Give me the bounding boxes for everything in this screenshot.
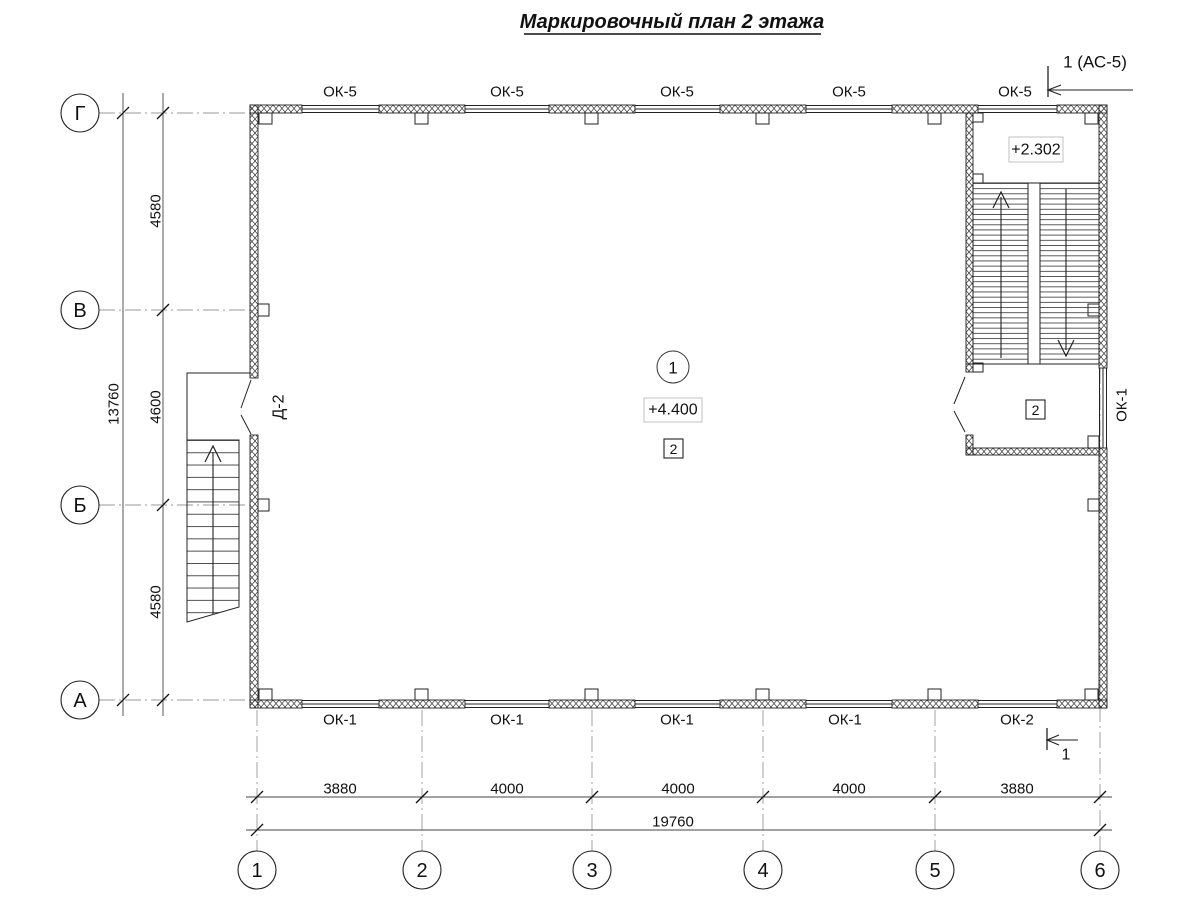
axis-col-5: 5 (929, 860, 940, 882)
axis-col-4: 4 (757, 860, 768, 882)
dimension-ticks (117, 107, 1106, 836)
drawing-title: Маркировочный план 2 этажа (520, 11, 825, 33)
window-label-top-5: ОК-5 (998, 84, 1032, 101)
window-label-right: ОК-1 (1114, 388, 1131, 422)
axis-grid-lines (99, 113, 1100, 851)
dim-h-segment-5: 3880 (1000, 781, 1033, 798)
window-label-top-2: ОК-5 (490, 84, 524, 101)
window-label-bottom-4: ОК-1 (828, 712, 862, 729)
axis-bubbles-rows: Г В Б А (61, 94, 99, 719)
elevation-landing: +2.302 (1011, 142, 1060, 159)
door-label-d2: Д-2 (271, 394, 288, 419)
axis-row-v: В (73, 300, 86, 322)
dimension-lines (123, 93, 1112, 830)
window-label-top-3: ОК-5 (660, 84, 694, 101)
dim-h-segment-3: 4000 (661, 781, 694, 798)
stair-left-exterior (187, 373, 250, 622)
section-label-top: 1 (АС-5) (1063, 53, 1127, 72)
window-right (1100, 368, 1107, 448)
section-label-bottom: 1 (1062, 747, 1071, 764)
floor-plan-drawing: Маркировочный план 2 этажа (0, 0, 1200, 900)
dim-v-segment-3: 4580 (148, 585, 165, 618)
room-type-stair: 2 (1032, 402, 1040, 418)
axis-bubbles-cols: 1 2 3 4 5 6 (238, 851, 1119, 889)
section-mark-top: 1 (АС-5) (1048, 53, 1133, 98)
stair-flight-down (1040, 183, 1099, 364)
dim-v-segment-1: 4580 (148, 194, 165, 227)
dim-v-total: 13760 (106, 383, 123, 425)
window-label-top-1: ОК-5 (323, 84, 357, 101)
door-leaf-d2 (241, 380, 251, 434)
door-leaf-stair-room (954, 377, 965, 432)
axis-row-g: Г (75, 103, 86, 125)
section-mark-bottom: 1 (1047, 728, 1078, 764)
window-label-bottom-5: ОК-2 (1000, 712, 1034, 729)
elevation-main: +4.400 (648, 402, 697, 419)
window-label-top-4: ОК-5 (832, 84, 866, 101)
dim-h-segment-4: 4000 (832, 781, 865, 798)
dim-h-segment-2: 4000 (490, 781, 523, 798)
axis-col-1: 1 (251, 860, 262, 882)
room-number: 1 (668, 359, 677, 378)
axis-col-3: 3 (586, 860, 597, 882)
room-type-hall: 2 (670, 441, 678, 457)
axis-row-a: А (73, 690, 87, 712)
floor-plan-page: Маркировочный план 2 этажа (0, 0, 1200, 900)
window-label-bottom-3: ОК-1 (660, 712, 694, 729)
dim-h-segment-1: 3880 (323, 781, 356, 798)
dim-h-total: 19760 (652, 814, 694, 831)
dim-v-segment-2: 4600 (148, 390, 165, 423)
window-label-bottom-1: ОК-1 (323, 712, 357, 729)
axis-col-6: 6 (1094, 860, 1105, 882)
window-label-bottom-2: ОК-1 (490, 712, 524, 729)
axis-row-b: Б (73, 495, 86, 517)
axis-col-2: 2 (416, 860, 427, 882)
stairwell-right (966, 183, 1099, 364)
